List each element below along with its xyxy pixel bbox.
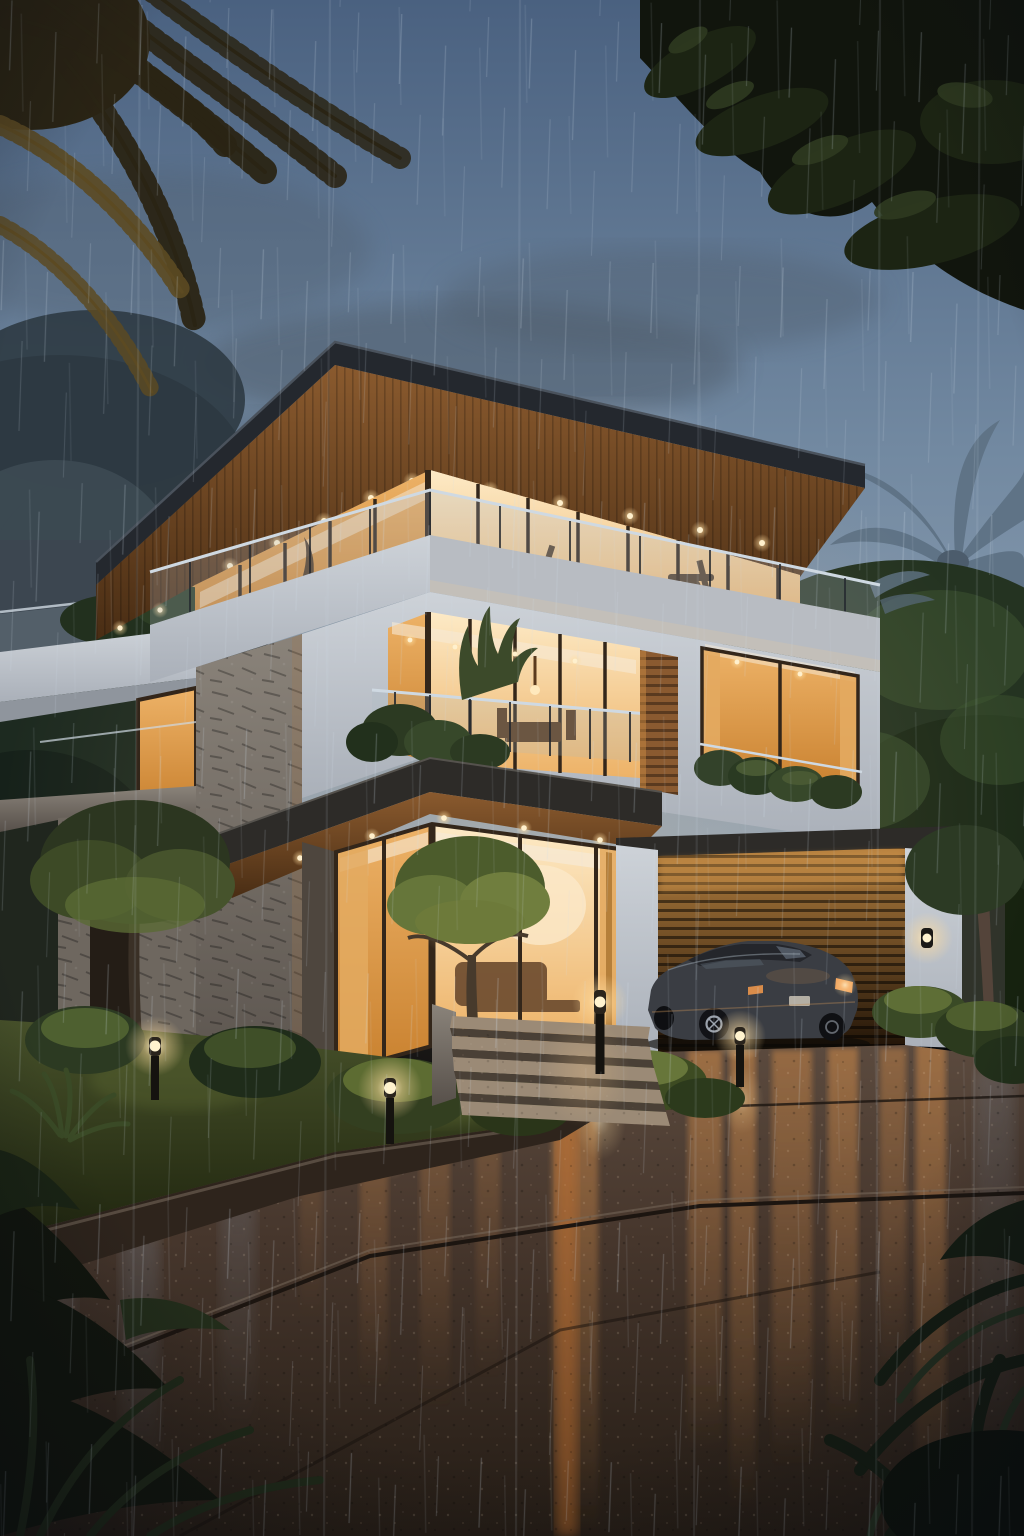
vignette (0, 0, 1024, 1536)
rendered-photo: Modern three-storey tropical villa at du… (0, 0, 1024, 1536)
